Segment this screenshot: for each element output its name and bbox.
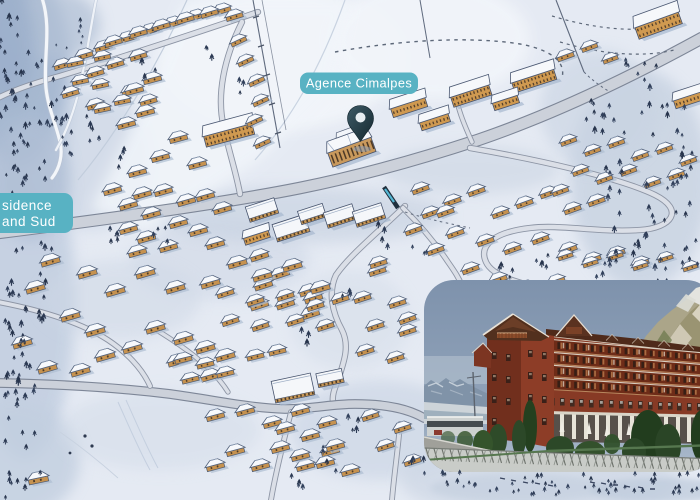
svg-text:and Sud: and Sud	[2, 214, 56, 229]
svg-text:Agence Cimalpes: Agence Cimalpes	[306, 76, 412, 91]
svg-text:sidence: sidence	[2, 198, 52, 213]
